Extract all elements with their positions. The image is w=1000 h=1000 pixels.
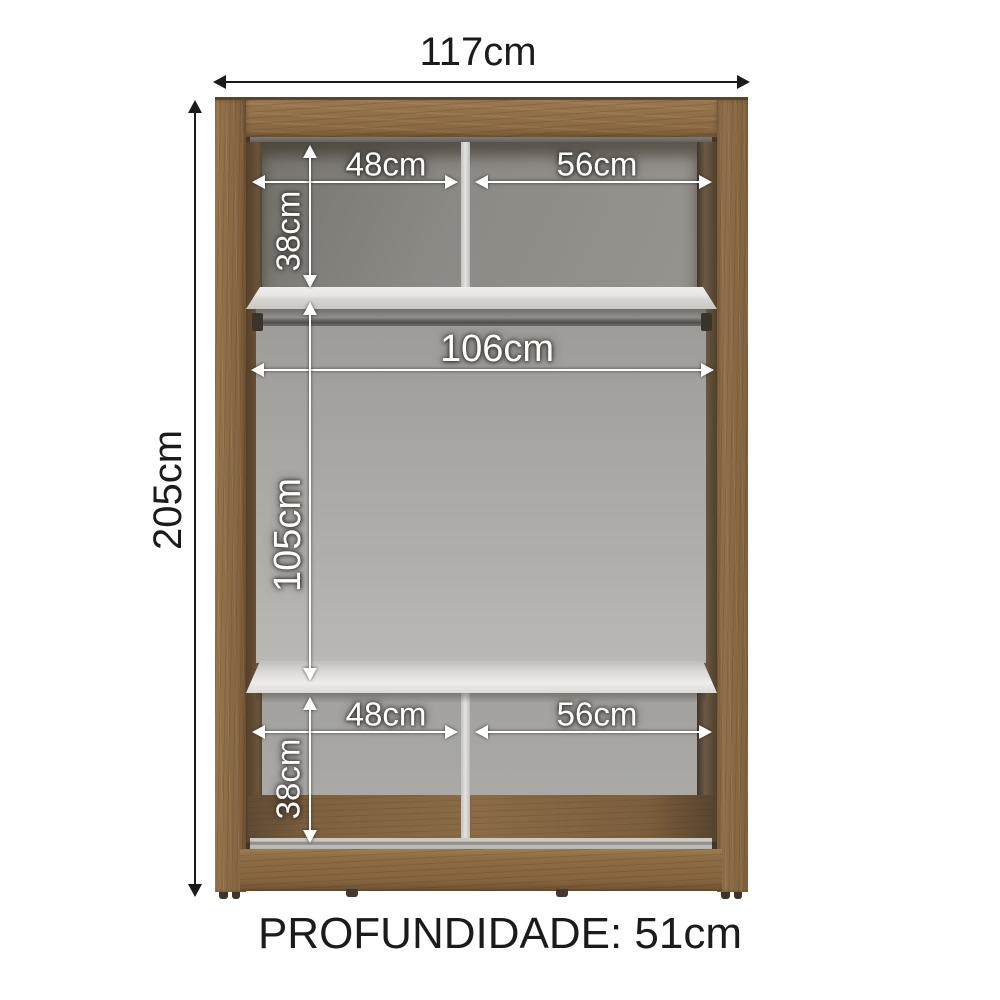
top-right-width-label: 56cm	[557, 148, 638, 181]
foot-center-b	[556, 889, 568, 897]
overall-height-label: 205cm	[148, 430, 188, 550]
wardrobe-dimension-diagram: 117cm 205cm 48cm 56cm 38cm 106cm 105cm 4…	[0, 0, 1000, 1000]
middle-width-arrow	[264, 369, 701, 371]
top-rail	[246, 100, 717, 137]
right-side-panel	[717, 100, 748, 892]
foot-right-b	[734, 892, 742, 899]
rod-bracket-left	[252, 313, 263, 331]
bottom-center-divider	[461, 693, 470, 841]
depth-label: PROFUNDIDADE: 51cm	[258, 912, 742, 956]
base-plinth	[240, 849, 722, 891]
top-right-width-arrow	[488, 181, 699, 183]
foot-center-a	[346, 889, 358, 897]
bottom-height-label: 38cm	[272, 739, 305, 820]
bottom-left-width-label: 48cm	[346, 698, 427, 731]
top-height-arrow	[309, 158, 311, 275]
rod-bracket-right	[701, 313, 712, 331]
foot-right-a	[721, 892, 730, 899]
middle-height-label: 105cm	[269, 478, 307, 592]
top-left-width-arrow	[265, 181, 445, 183]
top-center-divider	[461, 142, 470, 288]
bottom-right-width-arrow	[488, 731, 699, 733]
middle-width-label: 106cm	[440, 330, 554, 368]
bottom-track	[250, 838, 712, 849]
foot-left-a	[219, 892, 228, 899]
overall-height-arrow	[194, 113, 196, 884]
bottom-left-width-arrow	[265, 731, 445, 733]
interior-floor	[248, 795, 715, 840]
hanging-rod	[256, 318, 709, 326]
top-left-width-label: 48cm	[346, 148, 427, 181]
foot-left-b	[232, 892, 240, 899]
top-height-label: 38cm	[272, 191, 305, 272]
middle-height-arrow	[309, 315, 311, 668]
overall-width-label: 117cm	[419, 32, 536, 72]
bottom-right-width-label: 56cm	[557, 698, 638, 731]
left-side-panel	[215, 100, 246, 892]
bottom-height-arrow	[309, 710, 311, 830]
overall-width-arrow	[226, 81, 737, 83]
lower-shelf-shadow	[256, 693, 706, 703]
